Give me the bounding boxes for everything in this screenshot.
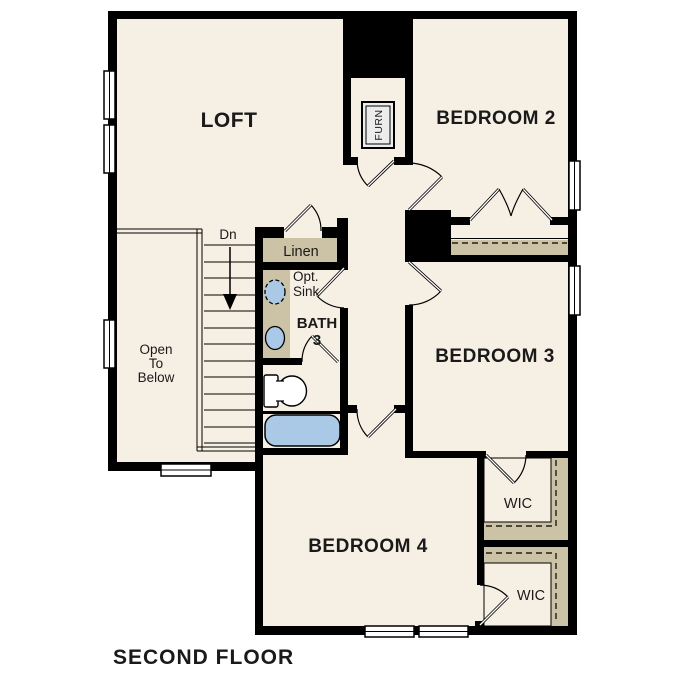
toilet-icon bbox=[264, 375, 307, 407]
bedroom3-label: BEDROOM 3 bbox=[435, 346, 555, 367]
opt-sink-label-line1: Opt. bbox=[293, 269, 319, 284]
floor-plan-page: FURN LOFT BEDROOM 2 BEDROOM 3 BEDROOM 4 … bbox=[0, 0, 687, 687]
opt-sink-label-line2: Sink bbox=[293, 284, 320, 299]
second-floor-plan: FURN LOFT BEDROOM 2 BEDROOM 3 BEDROOM 4 … bbox=[0, 0, 687, 687]
wic1-label: WIC bbox=[504, 496, 532, 512]
open-to-below-line1: Open bbox=[139, 342, 172, 357]
bathtub-icon bbox=[265, 415, 340, 446]
linen-label: Linen bbox=[283, 244, 318, 260]
furnace-unit: FURN bbox=[362, 102, 394, 148]
bedroom4-label: BEDROOM 4 bbox=[308, 536, 428, 557]
open-to-below-line2: To bbox=[149, 356, 163, 371]
bath3-label-line2: 3 bbox=[313, 332, 321, 349]
open-to-below-line3: Below bbox=[138, 370, 175, 385]
stairs-dn-label: Dn bbox=[219, 227, 236, 242]
furnace-label: FURN bbox=[373, 109, 385, 140]
bath3-label-line1: BATH bbox=[297, 315, 338, 332]
bedroom2-label: BEDROOM 2 bbox=[436, 108, 556, 129]
wic2-label: WIC bbox=[517, 588, 545, 604]
optional-sink-icon bbox=[265, 280, 285, 304]
sink-icon bbox=[266, 327, 285, 350]
floor-title: SECOND FLOOR bbox=[113, 646, 294, 669]
loft-label: LOFT bbox=[201, 109, 258, 132]
